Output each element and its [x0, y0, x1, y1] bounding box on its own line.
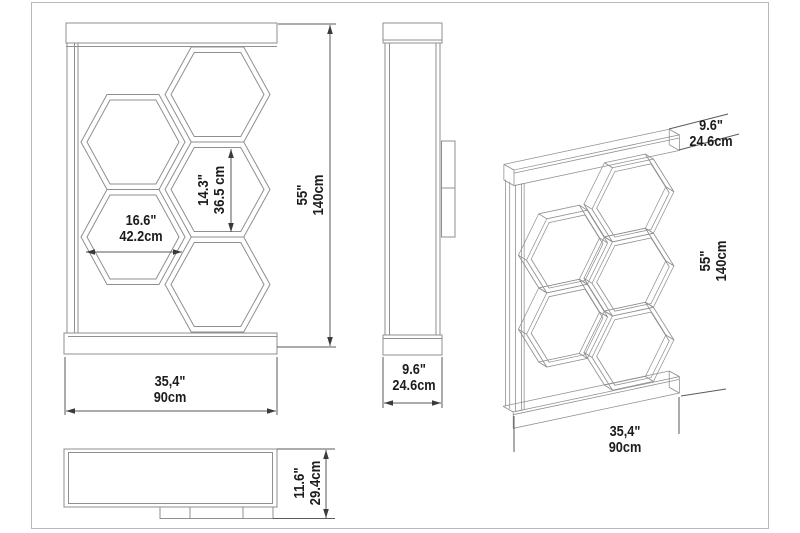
front-width-metric: 90cm: [154, 390, 187, 406]
perspective-tray-depth-label: 9.6" 24.6cm: [689, 118, 732, 150]
side-depth-metric: 24.6cm: [392, 378, 435, 394]
perspective-width-metric: 90cm: [609, 440, 642, 456]
front-height-inches: 55": [295, 174, 311, 215]
cell-width-inches: 16.6": [119, 213, 162, 229]
perspective-view: [503, 114, 739, 452]
side-depth-inches: 9.6": [392, 362, 435, 378]
drawing-canvas: [0, 0, 800, 533]
side-view: [383, 23, 455, 408]
perspective-height-inches: 55": [698, 240, 714, 281]
perspective-honeycomb-cells: [518, 148, 673, 410]
front-height-metric: 140cm: [311, 174, 327, 215]
technical-drawing-page: 35,4" 90cm 55" 140cm 16.6" 42.2cm 14.3" …: [0, 0, 800, 533]
perspective-height-metric: 140cm: [714, 240, 730, 281]
front-honeycomb-cells: [81, 47, 270, 332]
page-border: [32, 3, 769, 529]
front-view: [64, 23, 336, 415]
front-width-inches: 35,4": [154, 374, 187, 390]
perspective-width-label: 35,4" 90cm: [609, 424, 642, 456]
front-height-label: 55" 140cm: [295, 174, 327, 215]
cell-width-metric: 42.2cm: [119, 229, 162, 245]
cell-height-inches: 14.3": [196, 166, 212, 214]
cell-height-metric: 36.5 cm: [212, 166, 228, 214]
cell-width-label: 16.6" 42.2cm: [119, 213, 162, 245]
perspective-height-label: 55" 140cm: [698, 240, 730, 281]
top-depth-label: 11.6" 29.4cm: [292, 461, 324, 506]
top-depth-metric: 29.4cm: [308, 461, 324, 506]
perspective-tray-depth-inches: 9.6": [689, 118, 732, 134]
perspective-width-inches: 35,4": [609, 424, 642, 440]
side-depth-label: 9.6" 24.6cm: [392, 362, 435, 394]
front-width-label: 35,4" 90cm: [154, 374, 187, 406]
perspective-tray-depth-metric: 24.6cm: [689, 134, 732, 150]
top-depth-inches: 11.6": [292, 461, 308, 506]
cell-height-label: 14.3" 36.5 cm: [196, 166, 228, 214]
